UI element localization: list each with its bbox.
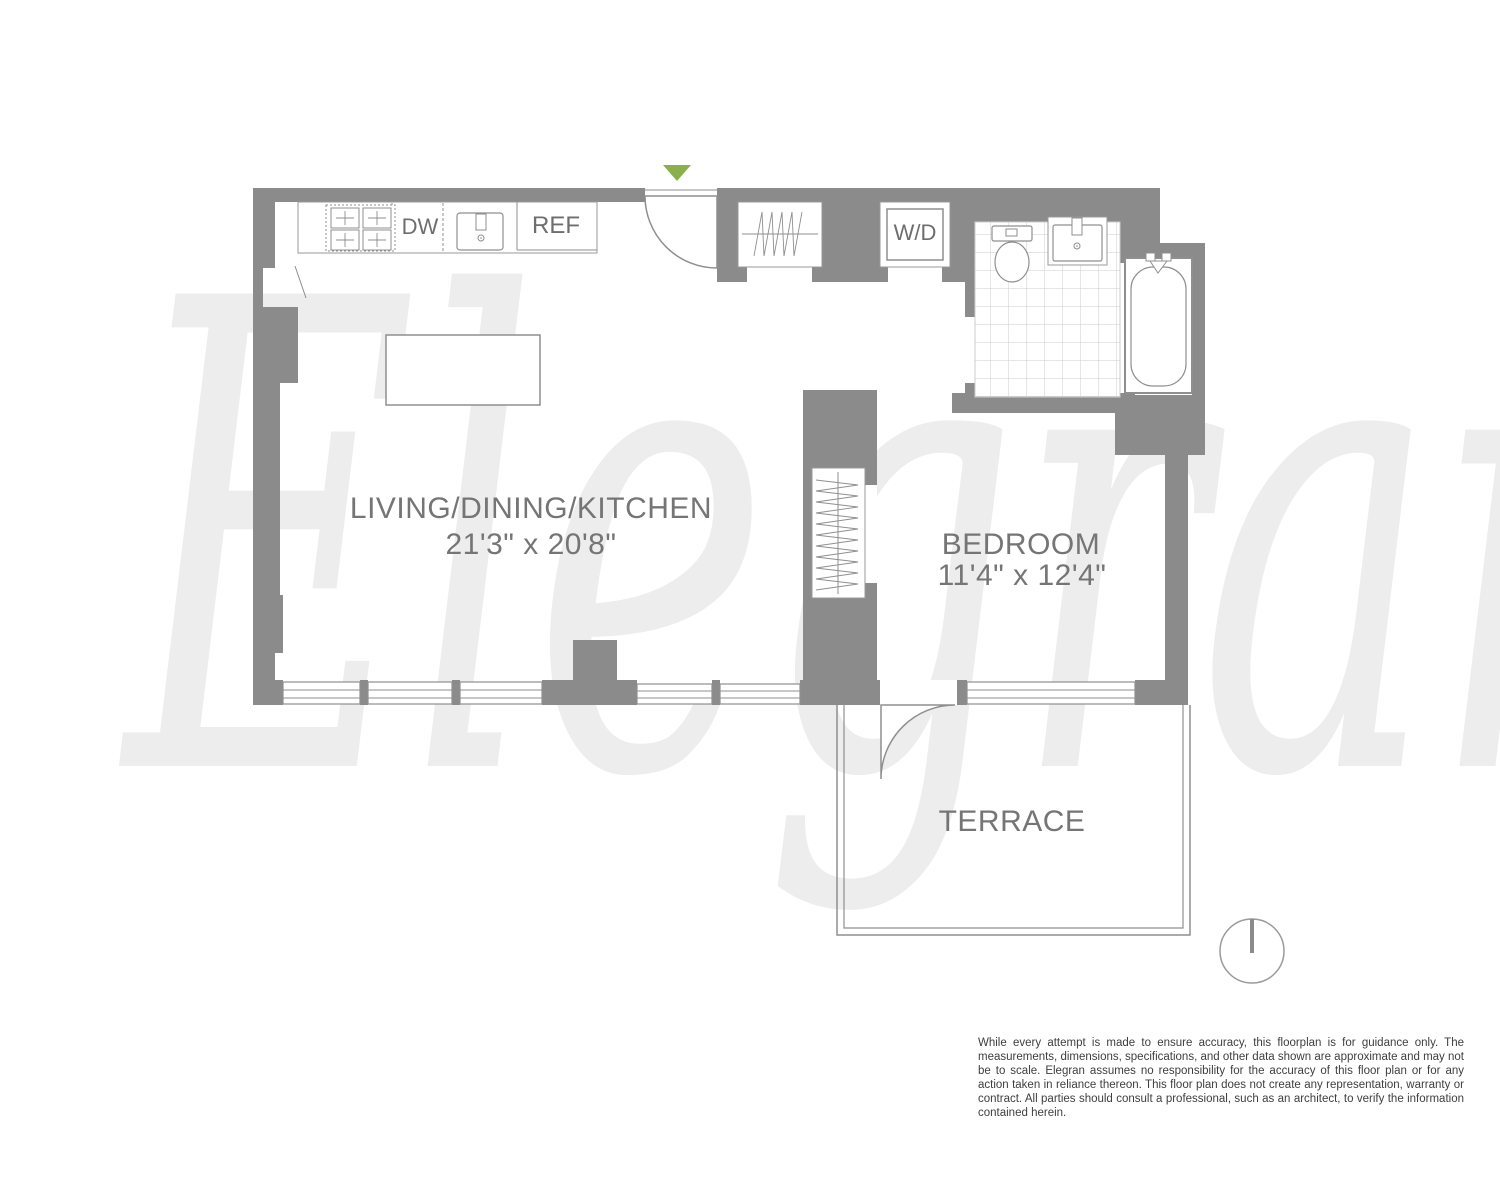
refrigerator-label: REF — [532, 212, 580, 240]
living-window — [637, 684, 712, 704]
terrace-label: TERRACE — [939, 805, 1086, 839]
living-room-label: LIVING/DINING/KITCHEN — [350, 492, 712, 526]
wall-segment — [253, 202, 275, 268]
door-swing-arc — [881, 705, 955, 779]
counter-end-diagonal — [295, 266, 306, 298]
stove-icon — [326, 205, 395, 251]
bedroom-dimensions: 11'4" x 12'4" — [938, 559, 1107, 593]
kitchen-island — [386, 335, 540, 405]
living-room-dimensions: 21'3" x 20'8" — [445, 528, 616, 562]
wall-segment — [812, 267, 822, 282]
wall-segment — [942, 267, 950, 282]
wall-segment — [1192, 263, 1205, 455]
closet-opening — [747, 267, 812, 282]
terrace-door-opening — [881, 680, 957, 705]
door-swing-arc — [645, 196, 717, 268]
wall-segment — [712, 680, 720, 705]
bedroom-entry-opening — [877, 393, 952, 413]
wall-segment — [950, 202, 975, 282]
bedroom-window — [967, 682, 1135, 704]
wall-segment — [253, 268, 263, 307]
dishwasher-label: DW — [402, 214, 439, 240]
living-window — [283, 682, 360, 704]
wall-segment — [360, 680, 368, 705]
bedroom-label: BEDROOM — [942, 528, 1101, 562]
wall-segment — [253, 680, 283, 705]
living-window — [368, 682, 452, 704]
wall-segment — [253, 383, 280, 595]
windows — [283, 682, 1135, 704]
bathtub-icon — [1125, 253, 1192, 393]
wall-segment — [717, 202, 738, 282]
entry-closet — [738, 202, 822, 267]
entry-door — [645, 190, 717, 268]
wall-segment — [1135, 680, 1188, 705]
wall-segment — [738, 267, 747, 282]
disclaimer-text: While every attempt is made to ensure ac… — [978, 1036, 1464, 1120]
toilet-icon — [992, 226, 1032, 282]
bedroom-closet — [812, 468, 877, 598]
entry-marker-icon — [663, 165, 691, 181]
living-window — [460, 682, 542, 704]
kitchen-sink-icon — [457, 213, 503, 250]
compass-icon — [1220, 919, 1284, 983]
living-window — [720, 684, 800, 704]
wall-segment — [880, 267, 888, 282]
wall-segment — [542, 680, 637, 705]
wall-segment — [253, 188, 645, 202]
wall-segment — [717, 188, 965, 202]
wall-segment — [965, 282, 975, 317]
wall-segment — [1165, 455, 1188, 680]
wall-segment — [253, 307, 298, 383]
terrace-door — [881, 705, 955, 779]
wall-segment — [573, 640, 617, 680]
washer-dryer-label: W/D — [894, 220, 937, 246]
bathroom-sink-icon — [1048, 217, 1107, 265]
floor-plan-canvas — [0, 0, 1500, 1200]
wall-segment — [452, 680, 460, 705]
laundry-opening — [888, 267, 942, 282]
wall-segment — [822, 202, 880, 282]
wall-segment — [800, 680, 880, 705]
wall-segment — [253, 595, 283, 653]
